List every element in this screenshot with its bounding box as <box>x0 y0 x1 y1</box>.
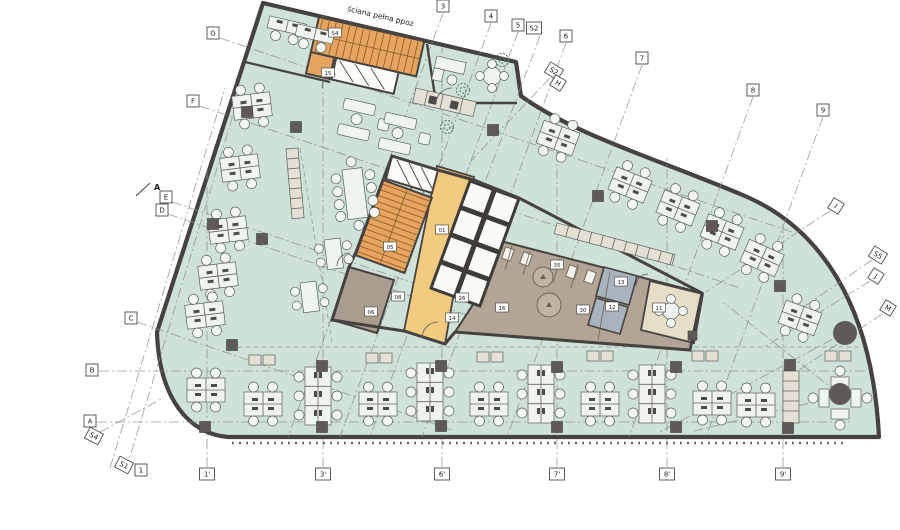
chair <box>249 382 259 392</box>
room-tag-label: 06 <box>368 310 375 316</box>
monitor <box>653 389 656 395</box>
desk-cluster-6 <box>628 365 676 423</box>
column <box>671 362 682 373</box>
room-tag-S4: S4 <box>329 28 342 37</box>
chair <box>628 408 638 418</box>
bench-unit <box>477 352 489 362</box>
grid-axis-line <box>100 398 163 432</box>
grid-marker-5: 5 <box>512 19 524 31</box>
floor-plan-canvas: ściana pełna ppoż A 345S26789S2HIS5JMGFE… <box>0 0 900 530</box>
room-tag-label: 26 <box>459 296 466 302</box>
monitor <box>605 407 611 410</box>
chair <box>698 381 708 391</box>
monitor <box>653 370 656 376</box>
grid-marker-1: 1 <box>135 464 147 476</box>
monitor <box>653 408 656 414</box>
column <box>688 331 697 340</box>
room-tag-label: 30 <box>580 308 587 314</box>
table <box>300 281 320 313</box>
bench-unit <box>839 351 851 361</box>
locker-strip <box>783 371 799 423</box>
column <box>552 422 563 433</box>
grid-marker-label: 9 <box>821 107 825 115</box>
room-tag-label: 12 <box>609 305 616 311</box>
chair <box>332 372 342 382</box>
monitor <box>494 398 500 401</box>
chair <box>555 408 565 418</box>
grid-marker-9: 9 <box>817 104 829 116</box>
chair <box>835 420 845 430</box>
column <box>242 107 253 118</box>
chair <box>494 382 504 392</box>
chair <box>628 389 638 399</box>
grid-marker-1': 1' <box>200 468 215 480</box>
chair <box>679 307 688 316</box>
monitor <box>383 398 389 401</box>
chair <box>406 368 416 378</box>
monitor <box>701 397 707 400</box>
desk <box>851 389 861 407</box>
bench-unit <box>380 353 392 363</box>
desk-cluster-6 <box>517 365 565 423</box>
desk-cluster-6 <box>294 367 342 425</box>
monitor <box>367 398 373 401</box>
chair <box>517 370 527 380</box>
room-tag-05: 05 <box>384 242 397 251</box>
grid-marker-label: E <box>164 194 168 202</box>
chair <box>605 416 615 426</box>
column <box>488 125 499 136</box>
chair <box>666 389 676 399</box>
chair <box>586 382 596 392</box>
grid-marker-label: 7' <box>554 471 560 479</box>
grid-marker-label: C <box>129 315 134 323</box>
room-tag-01: 01 <box>436 225 449 234</box>
column <box>593 191 604 202</box>
grid-marker-label: 4 <box>489 13 494 21</box>
chair <box>249 416 259 426</box>
chair <box>605 382 615 392</box>
chair <box>494 416 504 426</box>
round-table <box>483 67 501 85</box>
chair <box>717 381 727 391</box>
room-tag-16: 16 <box>496 303 509 312</box>
chair <box>666 408 676 418</box>
grid-marker-7': 7' <box>550 468 565 480</box>
monitor <box>478 398 484 401</box>
monitor <box>431 387 434 393</box>
chair <box>698 415 708 425</box>
monitor <box>431 368 434 374</box>
grid-marker-label: 7 <box>640 55 644 63</box>
monitor <box>211 393 217 396</box>
grid-marker-label: G <box>210 30 215 38</box>
monitor <box>494 407 500 410</box>
monitor <box>319 372 322 378</box>
chair <box>332 410 342 420</box>
chair <box>211 368 221 378</box>
round-column <box>829 383 851 405</box>
chair <box>742 417 752 427</box>
monitor <box>542 370 545 376</box>
column <box>317 422 328 433</box>
chair <box>500 72 509 81</box>
column <box>785 360 796 371</box>
grid-marker-label: 3 <box>441 3 445 11</box>
grid-marker-S1: S1 <box>115 456 134 474</box>
monitor <box>589 398 595 401</box>
column <box>291 122 302 133</box>
grid-marker-label: 1' <box>204 471 210 479</box>
grid-marker-label: 8' <box>664 471 670 479</box>
monitor <box>537 370 540 376</box>
section-marker-a: A <box>136 183 161 196</box>
monitor <box>648 408 651 414</box>
chair <box>192 368 202 378</box>
chair <box>211 402 221 412</box>
grid-marker-J: J <box>868 268 885 285</box>
grid-marker-label: 6 <box>564 33 569 41</box>
room-tag-label: S4 <box>332 31 339 37</box>
room-tag-label: 14 <box>449 316 456 322</box>
monitor <box>314 410 317 416</box>
room-tag-label: 35 <box>554 263 561 269</box>
chair <box>192 402 202 412</box>
grid-marker-label: 1 <box>139 467 143 475</box>
room-tag-label: 16 <box>499 306 506 312</box>
monitor <box>745 399 751 402</box>
armchair <box>418 132 431 145</box>
chair <box>667 295 676 304</box>
chair <box>294 391 304 401</box>
monitor <box>426 387 429 393</box>
monitor <box>701 406 707 409</box>
grid-marker-E: E <box>160 191 172 203</box>
column <box>200 422 211 433</box>
chair <box>383 382 393 392</box>
chair <box>808 393 818 403</box>
desk-return <box>432 68 444 82</box>
bench-unit <box>825 351 837 361</box>
column <box>552 362 563 373</box>
grid-marker-label: B <box>90 367 95 375</box>
lockers <box>783 371 799 423</box>
monitor <box>426 406 429 412</box>
room-tag-26: 26 <box>456 293 469 302</box>
monitor <box>537 389 540 395</box>
grid-marker-8': 8' <box>660 468 675 480</box>
bench-unit <box>366 353 378 363</box>
room-tag-label: 01 <box>439 228 446 234</box>
monitor <box>589 407 595 410</box>
grid-marker-label: 6' <box>439 471 445 479</box>
chair <box>268 382 278 392</box>
monitor <box>252 407 258 410</box>
monitor <box>319 391 322 397</box>
chair <box>555 389 565 399</box>
monitor <box>319 410 322 416</box>
grid-marker-M: M <box>880 300 897 317</box>
monitor <box>211 384 217 387</box>
desk <box>819 389 829 407</box>
grid-marker-3: 3 <box>437 0 449 12</box>
chair <box>517 389 527 399</box>
monitor <box>537 408 540 414</box>
monitor <box>717 397 723 400</box>
monitor <box>367 407 373 410</box>
grid-marker-6': 6' <box>435 468 450 480</box>
column <box>775 281 786 292</box>
grid-marker-label: A <box>88 418 93 426</box>
bench-unit <box>249 355 261 365</box>
room-tag-12: 12 <box>606 302 619 311</box>
chair <box>761 417 771 427</box>
chair <box>383 416 393 426</box>
chair <box>742 383 752 393</box>
bench-unit <box>692 351 704 361</box>
column <box>317 361 328 372</box>
round-column <box>833 321 857 345</box>
monitor <box>648 370 651 376</box>
chair <box>268 416 278 426</box>
chair <box>294 372 304 382</box>
chair <box>294 410 304 420</box>
monitor <box>314 372 317 378</box>
monitor <box>745 408 751 411</box>
chair <box>444 387 454 397</box>
monitor <box>717 406 723 409</box>
grid-marker-G: G <box>207 27 219 39</box>
room-tag-14: 14 <box>446 313 459 322</box>
table <box>324 238 344 270</box>
grid-marker-7: 7 <box>636 52 648 64</box>
chair <box>364 416 374 426</box>
grid-marker-8: 8 <box>747 84 759 96</box>
grid-marker-label: 8 <box>751 87 755 95</box>
chair <box>406 406 416 416</box>
chair <box>488 84 497 93</box>
bench-unit <box>706 351 718 361</box>
column <box>436 361 447 372</box>
chair <box>586 416 596 426</box>
chair <box>667 319 676 328</box>
monitor <box>383 407 389 410</box>
monitor <box>542 408 545 414</box>
bench-unit <box>263 355 275 365</box>
column <box>436 421 447 432</box>
bench-unit <box>587 351 599 361</box>
grid-marker-S5: S5 <box>868 246 887 264</box>
room-tag-06: 06 <box>365 307 378 316</box>
monitor <box>431 406 434 412</box>
chair <box>862 393 872 403</box>
grid-marker-I: I <box>828 198 845 215</box>
room-tag-label: 08 <box>395 295 402 301</box>
grid-marker-S2: S2 <box>527 22 542 34</box>
monitor <box>478 407 484 410</box>
room-tag-label: 05 <box>387 245 394 251</box>
grid-marker-9': 9' <box>776 468 791 480</box>
monitor <box>542 389 545 395</box>
monitor <box>195 384 201 387</box>
column <box>208 219 219 230</box>
section-tick <box>136 183 150 196</box>
monitor <box>268 407 274 410</box>
room-tag-label: 15 <box>325 71 332 77</box>
monitor <box>605 398 611 401</box>
grid-marker-label: 5 <box>516 22 520 30</box>
grid-marker-S4: S4 <box>85 427 104 445</box>
room-tag-15: 15 <box>322 68 335 77</box>
room-tag-label: 11 <box>656 306 663 312</box>
chair <box>476 72 485 81</box>
chair <box>475 382 485 392</box>
room-tag-13: 13 <box>615 277 628 286</box>
grid-marker-3': 3' <box>316 468 331 480</box>
column <box>707 221 718 232</box>
monitor <box>314 391 317 397</box>
grid-marker-4: 4 <box>485 10 497 22</box>
bench-unit <box>491 352 503 362</box>
room-tag-35: 35 <box>551 260 564 269</box>
room-tag-30: 30 <box>577 305 590 314</box>
grid-marker-label: F <box>191 98 195 106</box>
chair <box>406 387 416 397</box>
room-tag-08: 08 <box>392 292 405 301</box>
grid-marker-C: C <box>125 312 137 324</box>
column <box>671 422 682 433</box>
room-tag-label: 13 <box>618 280 625 286</box>
bench-unit <box>601 351 613 361</box>
grid-marker-label: D <box>159 207 164 215</box>
grid-marker-A: A <box>84 415 96 427</box>
column <box>783 423 794 434</box>
room-tag-11: 11 <box>653 303 666 312</box>
column <box>257 234 268 245</box>
grid-marker-B: B <box>86 364 98 376</box>
column <box>227 340 238 351</box>
monitor <box>761 408 767 411</box>
chair <box>364 382 374 392</box>
chair <box>517 408 527 418</box>
grid-marker-6: 6 <box>560 30 572 42</box>
chair <box>444 406 454 416</box>
monitor <box>761 399 767 402</box>
grid-marker-D: D <box>156 204 168 216</box>
monitor <box>648 389 651 395</box>
chair <box>761 383 771 393</box>
chair <box>835 366 845 376</box>
desk <box>831 409 849 419</box>
monitor <box>252 398 258 401</box>
grid-marker-F: F <box>187 95 199 107</box>
chair <box>628 370 638 380</box>
grid-marker-label: 3' <box>320 471 326 479</box>
monitor <box>426 368 429 374</box>
floor-plan-page: ściana pełna ppoż A 345S26789S2HIS5JMGFE… <box>0 0 900 530</box>
grid-marker-label: S2 <box>530 25 539 33</box>
monitor <box>268 398 274 401</box>
chair <box>717 415 727 425</box>
monitor <box>195 393 201 396</box>
chair <box>332 391 342 401</box>
grid-marker-label: 9' <box>780 471 786 479</box>
chair <box>475 416 485 426</box>
